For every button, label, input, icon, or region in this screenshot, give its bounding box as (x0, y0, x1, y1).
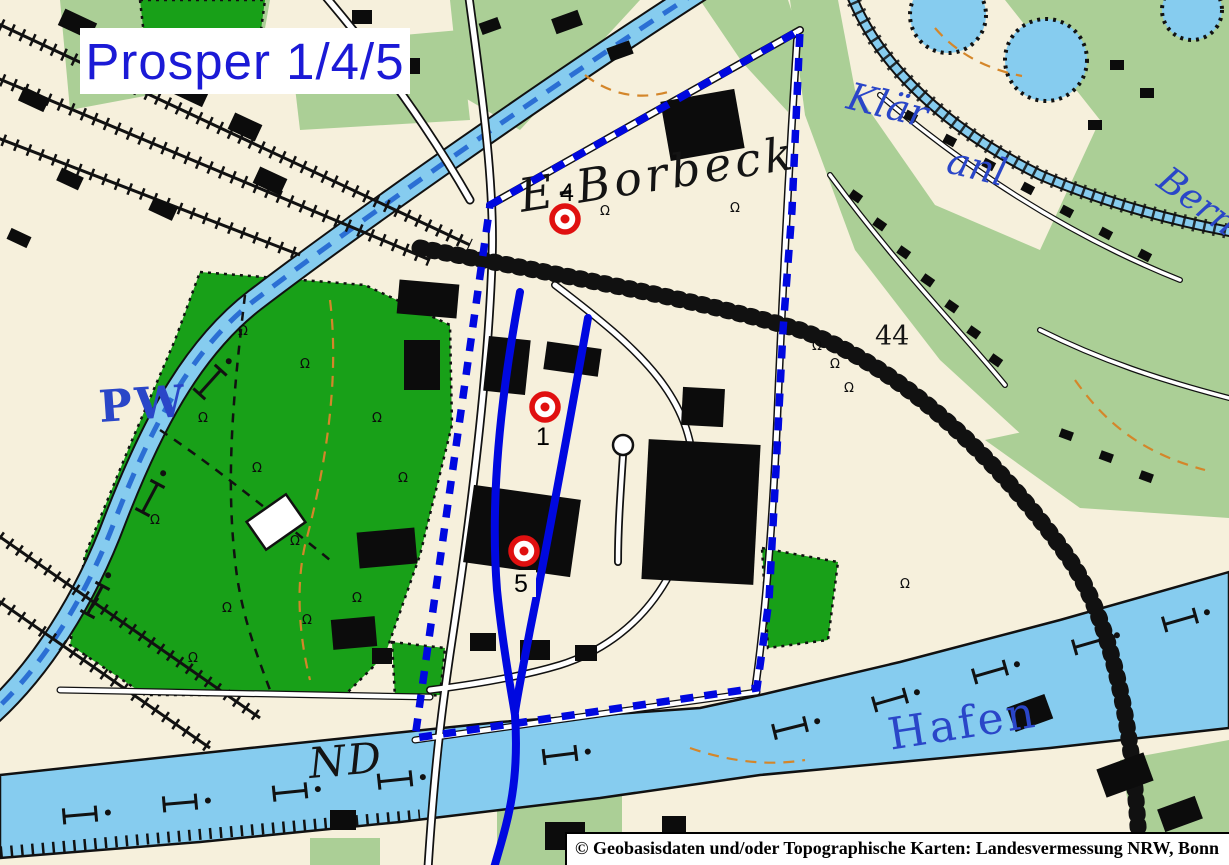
elevation-label: 44 (875, 321, 909, 352)
pumping-works-label: PW (97, 376, 189, 433)
marker-5-label: 5 (514, 570, 528, 598)
svg-text:Ω: Ω (844, 381, 854, 396)
svg-text:Ω: Ω (300, 357, 310, 372)
svg-text:Ω: Ω (252, 461, 262, 476)
svg-text:Ω: Ω (290, 534, 300, 549)
attribution-text: © Geobasisdaten und/oder Topographische … (575, 838, 1219, 858)
svg-text:Ω: Ω (302, 613, 312, 628)
map-canvas: ΩΩΩ ΩΩΩ ΩΩΩ ΩΩΩ ΩΩΩ ΩΩΩ ΩΩ (0, 0, 1229, 865)
svg-text:Ω: Ω (198, 411, 208, 426)
svg-text:Ω: Ω (150, 513, 160, 528)
marker-4-label: 4 (560, 179, 574, 207)
attribution-bar: © Geobasisdaten und/oder Topographische … (565, 832, 1229, 865)
svg-text:Ω: Ω (352, 591, 362, 606)
map-title-box: Prosper 1/4/5 (80, 28, 410, 94)
svg-text:Ω: Ω (900, 577, 910, 592)
svg-text:Ω: Ω (830, 357, 840, 372)
topographic-map: ΩΩΩ ΩΩΩ ΩΩΩ ΩΩΩ ΩΩΩ ΩΩΩ ΩΩ (0, 0, 1229, 865)
svg-text:Ω: Ω (730, 201, 740, 216)
svg-text:Ω: Ω (238, 324, 248, 339)
map-title: Prosper 1/4/5 (85, 32, 404, 91)
svg-text:Ω: Ω (188, 651, 198, 666)
svg-text:Ω: Ω (372, 411, 382, 426)
svg-text:Ω: Ω (398, 471, 408, 486)
river-mark-label: ND (306, 733, 385, 788)
svg-text:Ω: Ω (222, 601, 232, 616)
marker-1-label: 1 (536, 423, 550, 451)
svg-text:Ω: Ω (812, 339, 822, 354)
